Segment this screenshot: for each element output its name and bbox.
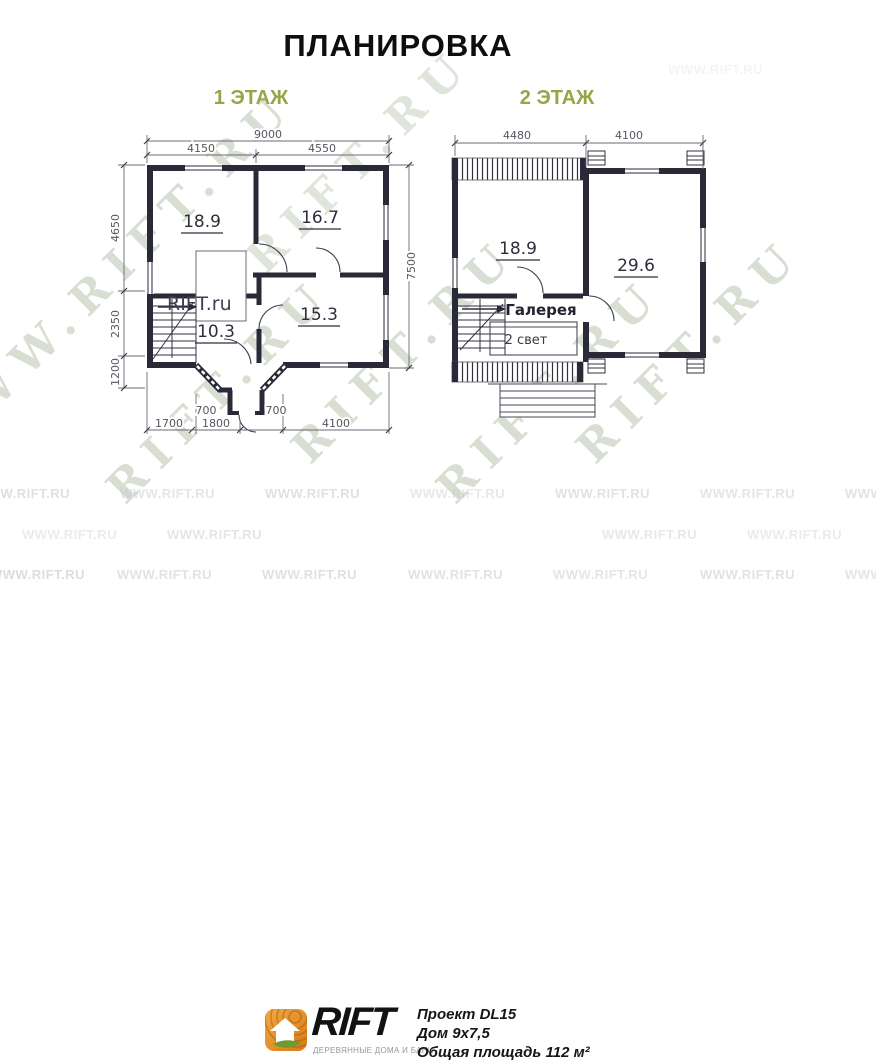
- watermark-row: WWW.RIFT.RU: [410, 486, 505, 501]
- footer: RIFT ДЕРЕВЯННЫЕ ДОМА И БАНИ Проект DL15 …: [0, 500, 876, 589]
- room-area-18-9: 18.9: [183, 212, 221, 232]
- watermark-row: WWW.RIFT.RU: [845, 486, 876, 501]
- plan-brand-text: RIFT.ru: [167, 293, 232, 315]
- floor2-bay-roof: [488, 384, 607, 417]
- room-area-10-3: 10.3: [197, 322, 235, 342]
- watermark-row: WWW.RIFT.RU: [555, 486, 650, 501]
- floor2-windows: [451, 167, 707, 359]
- floor2-bottom-railing: [452, 362, 583, 382]
- dim-700-right: 700: [266, 404, 287, 417]
- dim-4650: 4650: [109, 214, 122, 242]
- floor1-plan: 9000 4150 4550 4650 2350 1200 7500 1700 …: [109, 128, 418, 434]
- total-area: Общая площадь 112 м²: [417, 1043, 590, 1062]
- dim-4100-f1: 4100: [322, 417, 350, 430]
- dim-4100-f2: 4100: [615, 129, 643, 142]
- floor1-windows: [146, 164, 390, 369]
- floor2-top-railing: [452, 158, 586, 180]
- dim-4480: 4480: [503, 129, 531, 142]
- room-area-29-6: 29.6: [617, 256, 655, 276]
- room-area-15-3: 15.3: [300, 305, 338, 325]
- dim-1700: 1700: [155, 417, 183, 430]
- rift-logo-icon: [265, 1009, 307, 1051]
- floor1-walls: [147, 168, 389, 415]
- dim-4150: 4150: [187, 142, 215, 155]
- watermark-row: WWW.RIFT.RU: [120, 486, 215, 501]
- house-size: Дом 9х7,5: [417, 1024, 590, 1043]
- dim-4550: 4550: [308, 142, 336, 155]
- dim-7500: 7500: [405, 252, 418, 280]
- page-root: { "title": "ПЛАНИРОВКА", "floors": { "fl…: [0, 0, 876, 589]
- project-name: Проект DL15: [417, 1005, 590, 1024]
- dim-1200: 1200: [109, 358, 122, 386]
- watermark-row: WWW.RIFT.RU: [0, 486, 70, 501]
- room-area-16-7: 16.7: [301, 208, 339, 228]
- dim-700-left: 700: [196, 404, 217, 417]
- dim-9000: 9000: [254, 128, 282, 141]
- floor-plans-drawing: 9000 4150 4550 4650 2350 1200 7500 1700 …: [0, 0, 876, 470]
- floor2-plan: 4480 4100 18.9 29.6 Галерея 2 свет: [451, 129, 707, 417]
- watermark-row: WWW.RIFT.RU: [700, 486, 795, 501]
- dim-2350: 2350: [109, 310, 122, 338]
- project-info: Проект DL15 Дом 9х7,5 Общая площадь 112 …: [417, 1005, 590, 1062]
- dim-1800: 1800: [202, 417, 230, 430]
- watermark-row: WWW.RIFT.RU: [265, 486, 360, 501]
- rift-tagline: ДЕРЕВЯННЫЕ ДОМА И БАНИ: [313, 1046, 433, 1055]
- gallery-label: Галерея: [505, 301, 576, 319]
- double-light-label: 2 свет: [505, 333, 548, 348]
- rift-brand-text: RIFT: [310, 1000, 394, 1045]
- room-area-18-9-f2: 18.9: [499, 239, 537, 259]
